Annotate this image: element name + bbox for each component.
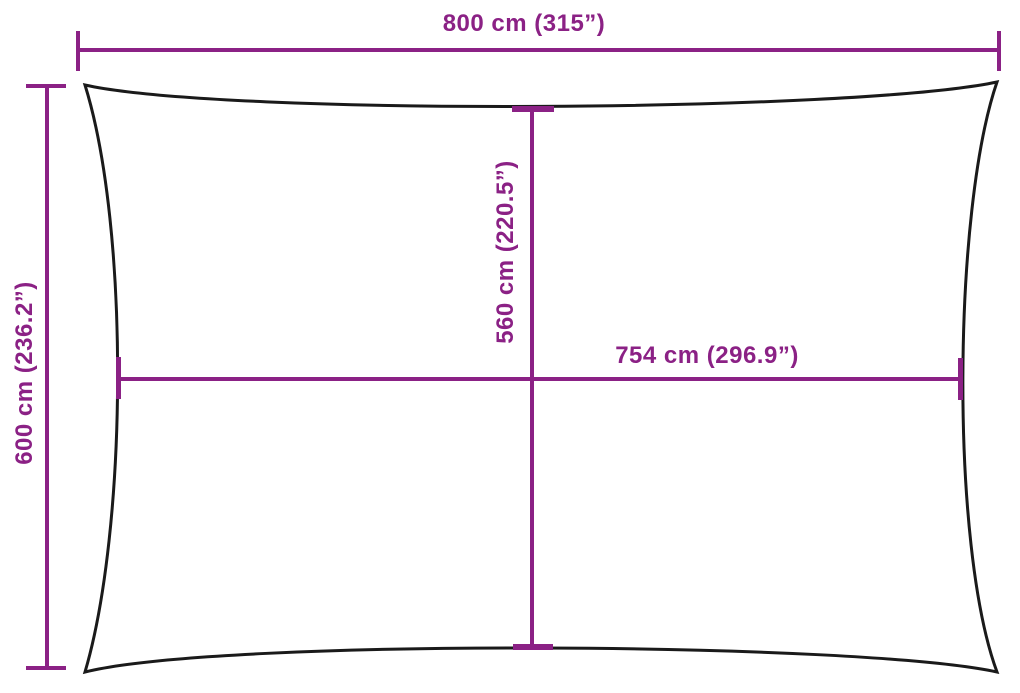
left-dimension-label: 600 cm (236.2”) (11, 281, 39, 465)
top-dimension-tick-left (76, 31, 80, 71)
top-dimension-tick-right (997, 31, 1001, 71)
left-dimension-tick-bottom (26, 666, 66, 670)
top-dimension-line (78, 48, 999, 52)
sail-outline-canvas (0, 0, 1020, 693)
center-horizontal-tick-left (116, 357, 121, 399)
left-dimension-tick-top (26, 84, 66, 88)
center-vertical-dimension-label: 560 cm (220.5”) (492, 160, 520, 344)
center-horizontal-tick-right (958, 358, 963, 400)
center-horizontal-dimension-label: 754 cm (296.9”) (615, 342, 799, 370)
center-horizontal-dimension-line (119, 377, 961, 381)
center-vertical-tick-bottom (513, 644, 553, 650)
left-dimension-line (45, 86, 49, 668)
center-vertical-tick-top (512, 106, 554, 112)
top-dimension-label: 800 cm (315”) (443, 10, 606, 38)
shade-sail-dimension-diagram: 800 cm (315”) 600 cm (236.2”) 560 cm (22… (0, 0, 1020, 693)
